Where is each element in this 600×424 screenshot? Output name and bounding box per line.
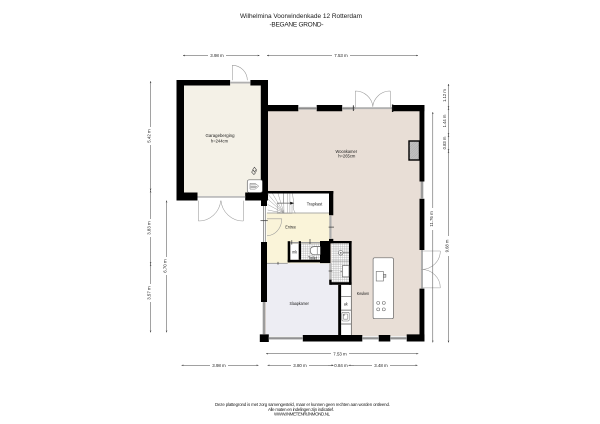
svg-text:Trapkast: Trapkast — [307, 201, 323, 207]
svg-text:1.12 m: 1.12 m — [442, 89, 447, 102]
svg-text:5.42 m: 5.42 m — [147, 129, 152, 143]
svg-text:3.98 m: 3.98 m — [212, 363, 226, 368]
svg-text:7.53 m: 7.53 m — [334, 53, 348, 58]
svg-text:6.70 m: 6.70 m — [163, 259, 168, 273]
svg-text:7.53 m: 7.53 m — [333, 351, 347, 356]
svg-text:Entree: Entree — [285, 224, 296, 230]
svg-text:3.48 m: 3.48 m — [374, 363, 388, 368]
svg-text:1.44 m: 1.44 m — [442, 114, 447, 127]
svg-text:3.80 m: 3.80 m — [293, 363, 307, 368]
svg-text:-BEGANE GROND-: -BEGANE GROND- — [270, 22, 324, 29]
svg-text:3.83 m: 3.83 m — [147, 221, 152, 235]
svg-text:3.57 m: 3.57 m — [147, 286, 152, 300]
svg-text:Wilhelmina Voorwindenkade 12 R: Wilhelmina Voorwindenkade 12 Rotterdam — [240, 13, 362, 20]
svg-text:WWW.INMETENRIJNMOND.NL: WWW.INMETENRIJNMOND.NL — [274, 412, 331, 417]
svg-text:h=244cm: h=244cm — [211, 138, 228, 144]
svg-text:0.83 m: 0.83 m — [442, 136, 447, 149]
svg-text:Garageberging: Garageberging — [206, 133, 235, 139]
svg-text:Toilet: Toilet — [308, 256, 318, 261]
svg-text:h=265cm: h=265cm — [338, 154, 355, 160]
svg-text:Keuken: Keuken — [357, 291, 370, 297]
svg-text:9.68 m: 9.68 m — [445, 239, 450, 252]
svg-text:mk: mk — [292, 249, 298, 254]
svg-text:3.98 m: 3.98 m — [210, 53, 224, 58]
svg-text:11.76 m: 11.76 m — [429, 211, 434, 227]
svg-text:Slaapkamer: Slaapkamer — [290, 301, 310, 307]
svg-text:0.84 m: 0.84 m — [334, 363, 348, 368]
